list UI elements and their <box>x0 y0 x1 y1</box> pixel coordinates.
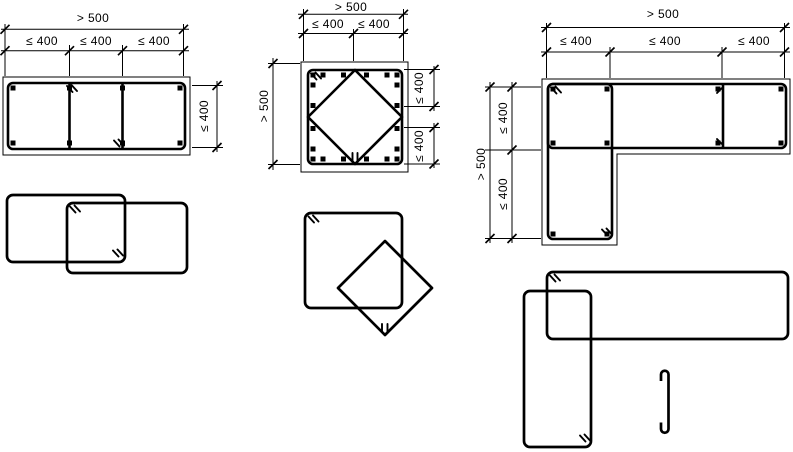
stirrup-horizontal <box>547 272 788 339</box>
concrete-outline <box>542 79 790 245</box>
cross-tie-with-hooks <box>661 371 669 433</box>
l-column-dimensions <box>485 23 790 243</box>
dim-label-rect-right-side: ≤ 400 <box>198 100 210 132</box>
perimeter-stirrup <box>8 83 185 149</box>
dim-label-square-left-side: > 500 <box>258 90 270 122</box>
hook-marks <box>309 216 388 333</box>
rebar-dots <box>311 73 400 162</box>
dim-label-rect-top-seg1: ≤ 400 <box>26 35 58 47</box>
dim-label-rect-top-overall: > 500 <box>77 12 109 24</box>
concrete-outline <box>301 62 408 172</box>
dim-label-rect-top-seg2: ≤ 400 <box>80 35 112 47</box>
dim-label-l-top-seg2: ≤ 400 <box>649 35 681 47</box>
rebar-dots <box>551 87 784 237</box>
rect-column-stirrups-exploded <box>7 195 187 273</box>
hook-marks <box>70 206 123 257</box>
concrete-outline <box>3 77 190 155</box>
dim-label-l-top-seg1: ≤ 400 <box>560 35 592 47</box>
square-column-stirrups-exploded <box>305 213 432 335</box>
hook-marks <box>550 275 590 442</box>
dim-label-square-top-overall: > 500 <box>335 1 367 13</box>
drawing-canvas <box>0 0 793 452</box>
diamond-tie <box>308 70 402 164</box>
rect-column-section <box>3 77 190 155</box>
stirrup-vertical <box>524 291 591 447</box>
dim-label-square-right-seg2: ≤ 400 <box>413 130 425 162</box>
dim-label-l-left-seg2: ≤ 400 <box>497 178 509 210</box>
dim-label-l-top-seg3: ≤ 400 <box>738 35 770 47</box>
dim-label-square-right-seg1: ≤ 400 <box>413 72 425 104</box>
diamond-tie <box>338 241 432 335</box>
hook-marks <box>67 85 124 147</box>
dim-label-l-left-overall: > 500 <box>475 148 487 180</box>
dim-label-rect-top-seg3: ≤ 400 <box>138 35 170 47</box>
perimeter-stirrup-vertical <box>548 84 612 239</box>
dim-label-square-top-seg2: ≤ 400 <box>358 18 390 30</box>
square-stirrup <box>305 213 402 308</box>
rebar-dots <box>11 86 183 146</box>
l-column-stirrups-exploded <box>524 272 788 447</box>
dim-label-l-left-seg1: ≤ 400 <box>497 102 509 134</box>
dim-label-square-top-seg1: ≤ 400 <box>312 18 344 30</box>
perimeter-stirrup <box>308 70 402 164</box>
dim-label-l-top-overall: > 500 <box>647 8 679 20</box>
hook-marks <box>311 73 358 163</box>
square-column-section <box>301 62 408 172</box>
reinforcement-detailing-figure: > 500 ≤ 400 ≤ 400 ≤ 400 ≤ 400 > 500 ≤ 40… <box>0 0 793 452</box>
perimeter-stirrup-horizontal <box>548 84 786 148</box>
l-column-section <box>542 79 790 245</box>
hook-marks <box>551 87 723 236</box>
